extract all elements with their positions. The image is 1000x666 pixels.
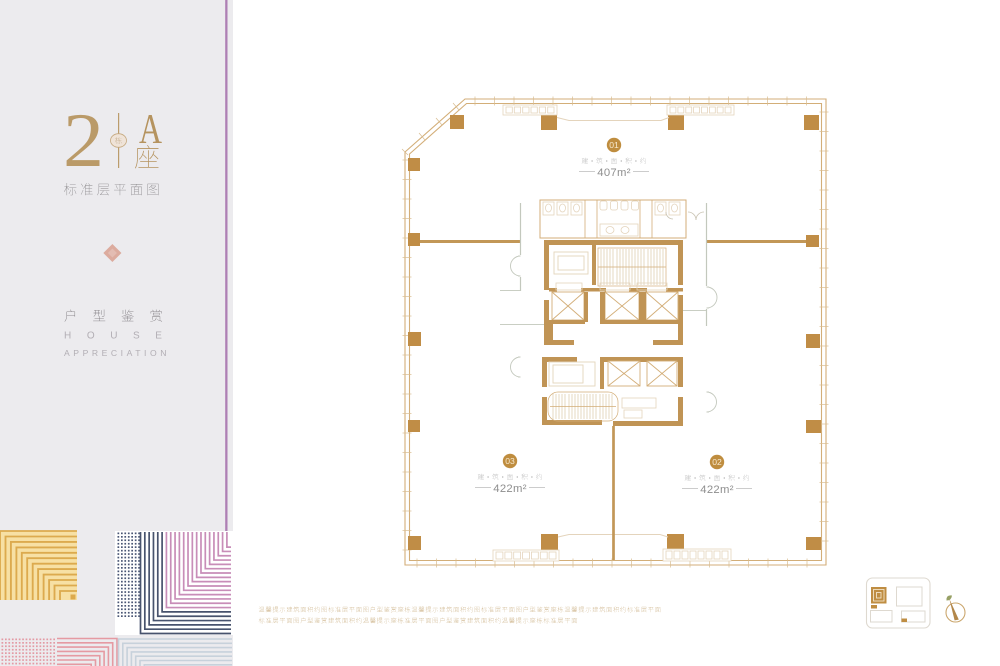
svg-text:422m²: 422m² <box>700 484 734 496</box>
svg-text:02: 02 <box>712 457 722 467</box>
svg-text:HOUSE: HOUSE <box>64 331 178 342</box>
svg-text:A: A <box>139 107 162 153</box>
svg-text:407m²: 407m² <box>597 167 631 179</box>
svg-text:01: 01 <box>609 140 619 150</box>
svg-text:APPRECIATION: APPRECIATION <box>64 348 170 358</box>
svg-text:03: 03 <box>505 456 515 466</box>
svg-text:422m²: 422m² <box>493 483 527 495</box>
svg-text:2: 2 <box>63 97 104 183</box>
